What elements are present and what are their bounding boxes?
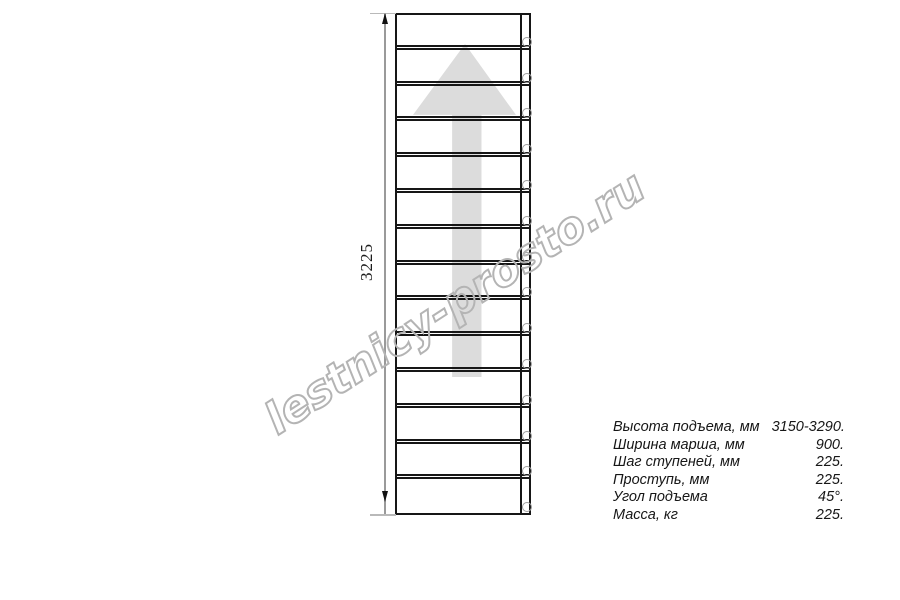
spec-value: 45°.: [818, 489, 844, 507]
spec-value: 3150-3290.: [772, 419, 845, 437]
spec-value: 900.: [816, 437, 844, 455]
spec-row-2: Ширина марша, мм900.: [613, 437, 844, 455]
spec-row-3: Шаг ступеней, мм225.: [613, 454, 844, 472]
spec-value: 225.: [816, 472, 844, 490]
dimension-arrowhead-up-icon: [382, 13, 388, 24]
spec-row-1: Высота подъема, мм3150-3290.: [613, 419, 844, 437]
dimension-arrowhead-down-icon: [382, 491, 388, 502]
spec-row-4: Проступь, мм225.: [613, 472, 844, 490]
dimension-line: [384, 14, 386, 514]
spec-label: Ширина марша, мм: [613, 437, 745, 455]
dimension-extension-bottom: [370, 514, 396, 516]
spec-row-5: Угол подъема45°.: [613, 489, 844, 507]
specification-list: Высота подъема, мм3150-3290.Ширина марша…: [613, 419, 844, 524]
spec-value: 225.: [816, 454, 844, 472]
spec-label: Масса, кг: [613, 507, 678, 525]
spec-label: Проступь, мм: [613, 472, 709, 490]
spec-row-6: Масса, кг225.: [613, 507, 844, 525]
spec-label: Угол подъема: [613, 489, 708, 507]
dimension-label: 3225: [357, 243, 377, 281]
spec-label: Высота подъема, мм: [613, 419, 760, 437]
technical-drawing-canvas: 3225 lestnicy-prosto.ru Высота подъема, …: [0, 0, 900, 600]
spec-value: 225.: [816, 507, 844, 525]
spec-label: Шаг ступеней, мм: [613, 454, 740, 472]
